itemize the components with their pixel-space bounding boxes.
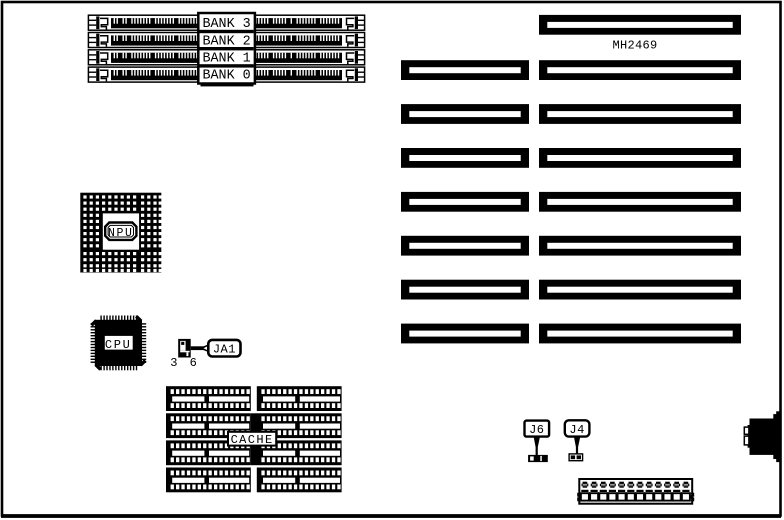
svg-text:BANK 2: BANK 2 [202,34,250,49]
svg-text:NPU: NPU [108,227,134,240]
svg-text:CACHE: CACHE [231,433,274,447]
svg-text:BANK 3: BANK 3 [202,17,250,32]
svg-text:BANK 0: BANK 0 [202,69,250,84]
svg-text:6: 6 [190,356,197,370]
svg-text:MH2469: MH2469 [612,38,657,52]
svg-text:J4: J4 [569,423,584,437]
svg-text:CPU: CPU [105,338,132,352]
svg-text:JA1: JA1 [213,342,236,356]
svg-text:J6: J6 [529,423,544,437]
svg-text:3: 3 [170,356,177,370]
svg-text:BANK 1: BANK 1 [202,52,250,67]
